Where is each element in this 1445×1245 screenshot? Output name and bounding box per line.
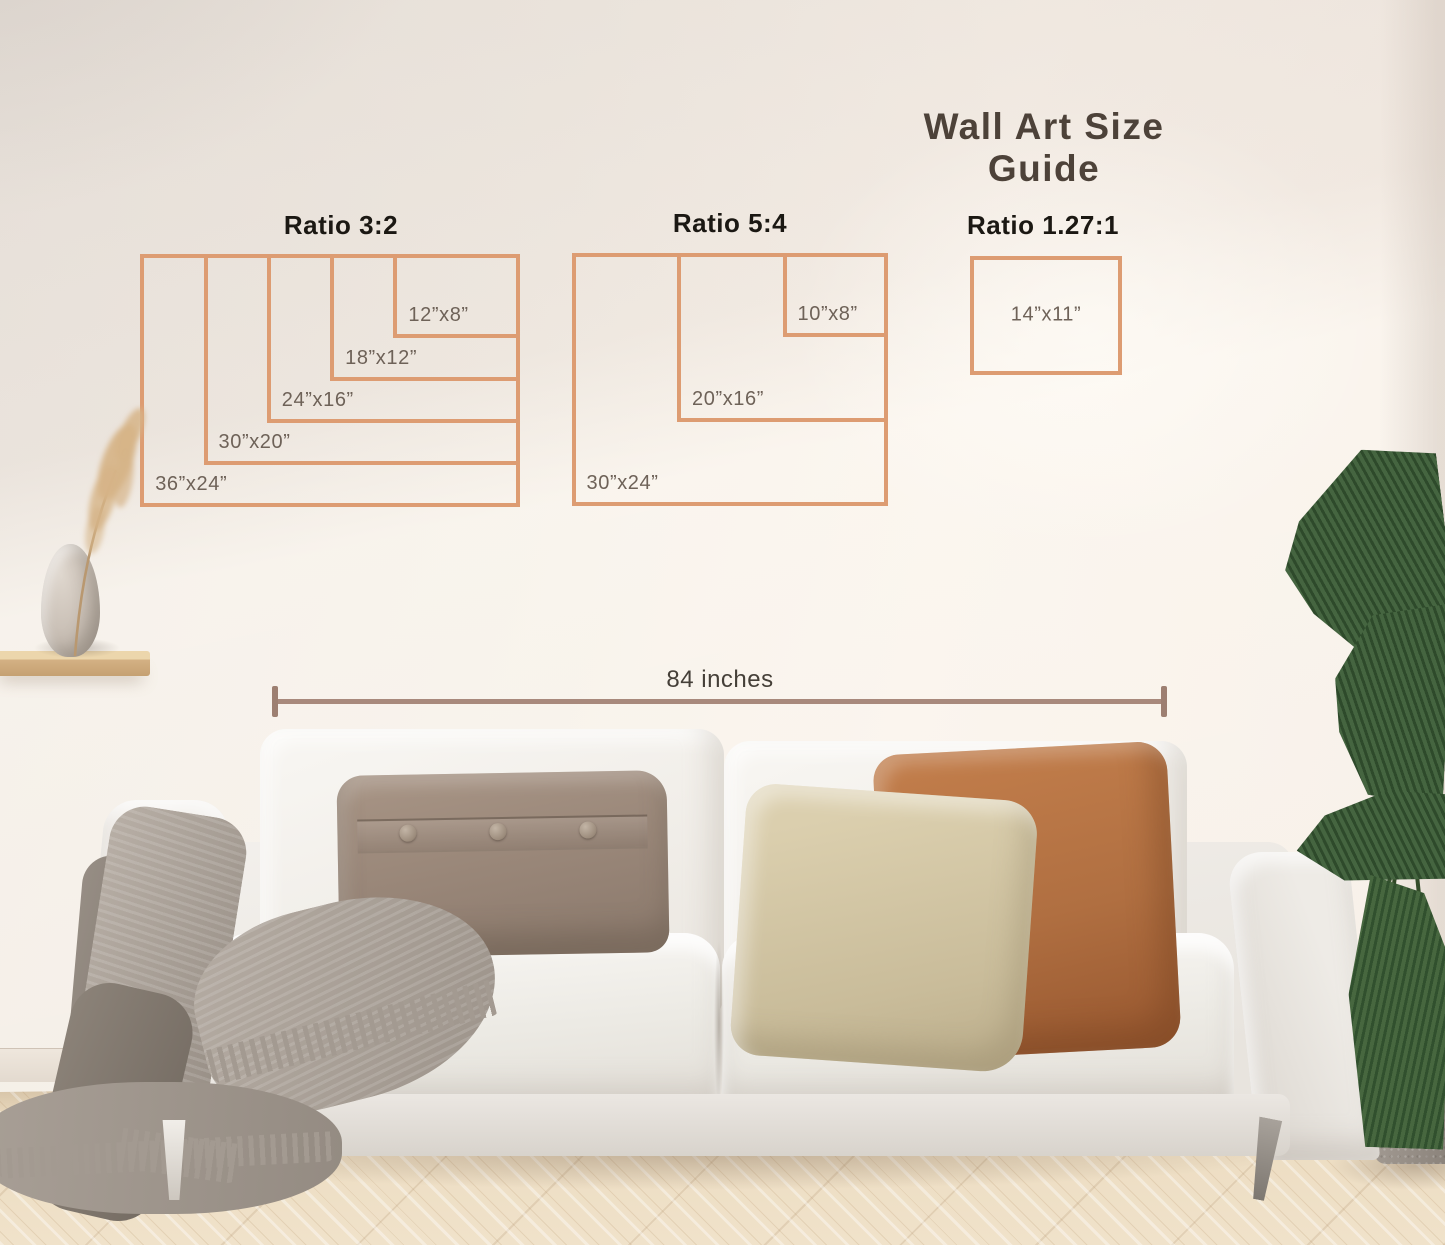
size-label: 14”x11” [974, 303, 1118, 326]
ratio-group-title: Ratio 5:4 [580, 208, 880, 239]
pampas-grass [40, 378, 190, 663]
pillow-cream [729, 782, 1039, 1074]
measurement-line [274, 699, 1166, 704]
ratio-group-title: Ratio 3:2 [191, 210, 491, 241]
measurement-cap-right [1161, 686, 1167, 717]
size-rect-10inx8in: 10”x8” [783, 253, 889, 337]
size-label: 30”x20” [219, 431, 291, 454]
size-rect-12inx8in: 12”x8” [393, 254, 520, 338]
size-rect-14inx11in: 14”x11” [970, 256, 1122, 375]
ratio-group-title: Ratio 1.27:1 [893, 210, 1193, 241]
size-label: 30”x24” [587, 472, 659, 495]
measurement-cap-left [272, 686, 278, 717]
size-label: 18”x12” [345, 347, 417, 370]
measurement-label: 84 inches [570, 666, 870, 694]
sofa-seat-gap [714, 940, 724, 1108]
size-label: 12”x8” [408, 304, 468, 327]
scene: Wall Art Size Guide Ratio 3:236”x24”30”x… [0, 0, 1445, 1245]
size-label: 24”x16” [282, 389, 354, 412]
size-label: 10”x8” [798, 303, 858, 326]
size-label: 20”x16” [692, 388, 764, 411]
